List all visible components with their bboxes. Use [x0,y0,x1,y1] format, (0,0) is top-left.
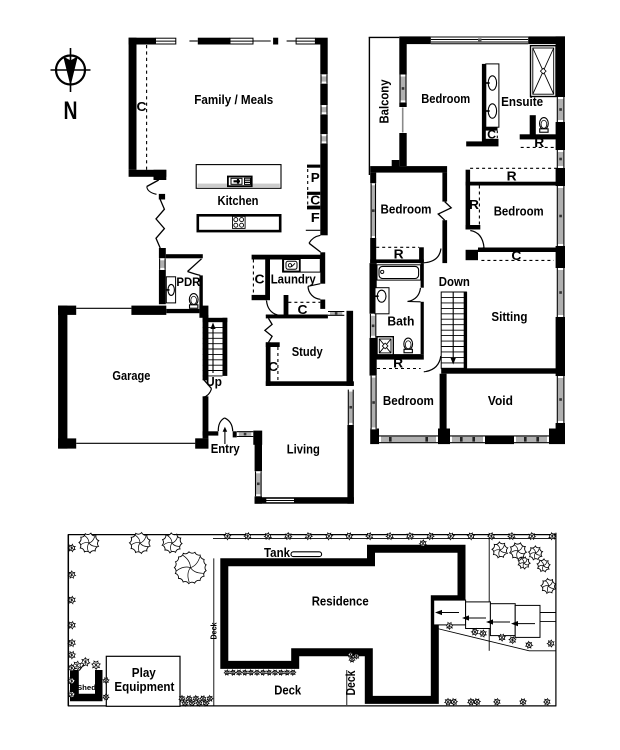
svg-text:Bedroom: Bedroom [383,393,434,408]
svg-text:Entry: Entry [211,441,241,456]
svg-text:Deck: Deck [274,683,302,698]
svg-text:Garage: Garage [112,368,150,383]
svg-text:Bedroom: Bedroom [494,204,544,219]
svg-text:F: F [311,211,320,225]
svg-text:Deck: Deck [344,670,358,695]
svg-text:Down: Down [439,274,470,289]
svg-text:Tank: Tank [264,546,290,560]
svg-text:Equipment: Equipment [114,680,175,694]
svg-text:C: C [255,273,265,287]
svg-text:Residence: Residence [312,595,369,609]
svg-text:Play: Play [132,666,156,680]
svg-text:Void: Void [488,393,513,408]
svg-text:Ensuite: Ensuite [501,94,543,109]
svg-text:R: R [507,169,517,183]
svg-text:Up: Up [206,374,222,389]
svg-text:Shed: Shed [77,685,96,692]
svg-text:Laundry: Laundry [271,271,317,286]
svg-text:PDR: PDR [176,277,201,289]
svg-text:Bedroom: Bedroom [421,91,470,106]
svg-text:Bedroom: Bedroom [381,202,432,217]
svg-text:C: C [310,193,320,207]
svg-text:P: P [311,171,320,185]
svg-text:C: C [137,100,147,114]
svg-text:Study: Study [292,344,324,359]
svg-text:Balcony: Balcony [377,79,392,124]
svg-text:Sitting: Sitting [491,309,527,324]
svg-text:Deck: Deck [210,622,219,639]
svg-text:Family / Meals: Family / Meals [194,92,273,107]
svg-text:R: R [469,198,479,212]
svg-text:C: C [268,360,278,374]
svg-text:Bath: Bath [387,314,414,329]
svg-text:N: N [64,97,78,125]
svg-text:Kitchen: Kitchen [218,193,259,208]
svg-text:Living: Living [287,441,320,456]
